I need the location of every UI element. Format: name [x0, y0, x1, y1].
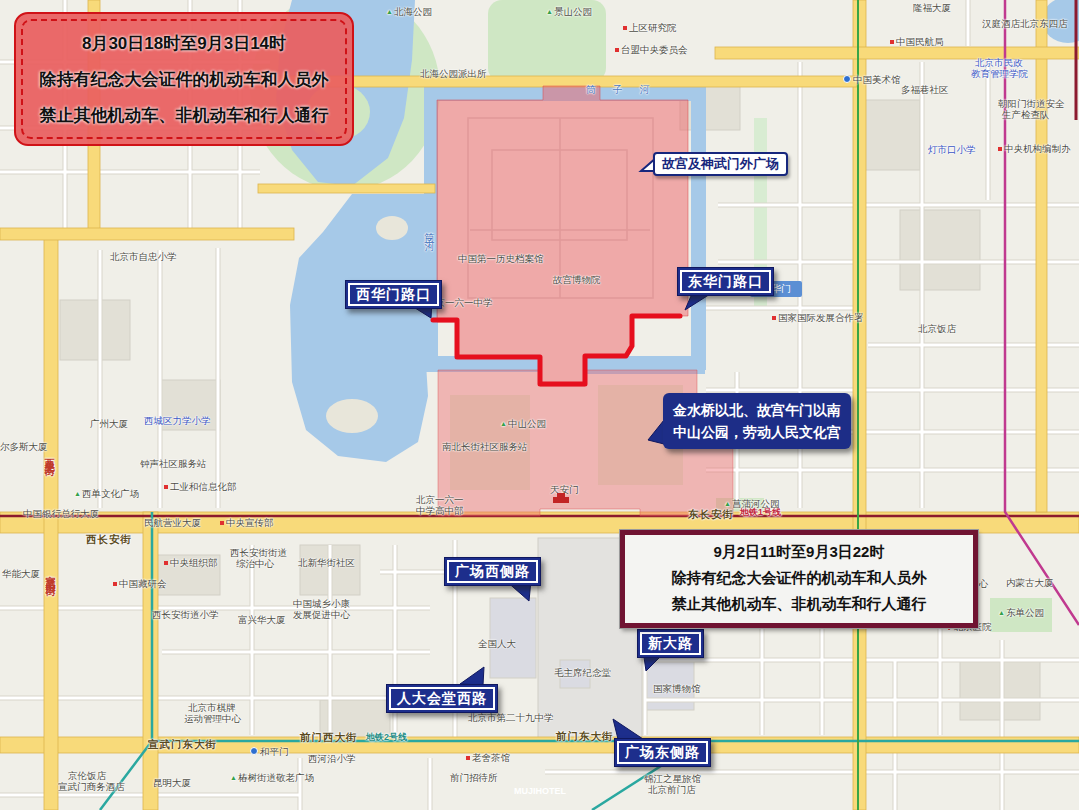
map-label: 前门招待所: [450, 772, 498, 783]
map-label: 中国美术馆: [843, 74, 901, 85]
map-label: 中国城乡小康: [293, 598, 350, 609]
map-label: 西单文化广场: [74, 488, 139, 499]
map-label: 多福巷社区: [901, 84, 949, 95]
road-callout: 新大路: [637, 629, 704, 658]
map-label: 昆明大厦: [153, 777, 191, 788]
road-callout-label: 新大路: [640, 632, 701, 655]
map-label: 上区研究院: [623, 22, 677, 33]
beijing-traffic-restriction-map[interactable]: 北海公园景山公园上区研究院台盟中央委员会北海公园派出所筒 子 河隆福大厦汉庭酒店…: [0, 0, 1079, 810]
map-label: 内蒙古大厦: [1006, 577, 1054, 588]
road-callout-label: 西华门路口: [348, 283, 439, 306]
map-label: 筒 子 河: [586, 84, 657, 95]
banner-line: 禁止其他机动车、非机动车和行人通行: [625, 591, 973, 617]
map-label: 京伦饭店: [68, 770, 106, 781]
map-label: 尔多斯大厦: [0, 441, 48, 452]
map-label: 西长安街街道: [230, 547, 287, 558]
map-label: 台盟中央委员会: [615, 44, 688, 55]
restriction-banner-sep2: 9月2日11时至9月3日22时 除持有纪念大会证件的机动车和人员外 禁止其他机动…: [620, 530, 978, 628]
map-label: 中山公园: [500, 418, 546, 429]
map-label: 富兴华大厦: [238, 614, 286, 625]
map-label: 西长安街道小学: [152, 609, 219, 620]
road-callout-label: 广场东侧路: [617, 741, 708, 764]
map-label: 东单公园: [998, 607, 1044, 618]
map-label: 国家国际发展合作署: [772, 312, 864, 323]
map-label: 北海公园派出所: [420, 68, 487, 79]
callout-palace-square: 故宫及神武门外广场: [653, 152, 788, 176]
map-label: 运动管理中心: [184, 713, 241, 724]
banner-line: 除持有纪念大会证件的机动车和人员外: [16, 62, 352, 98]
map-label: 北京饭店: [918, 323, 956, 334]
map-label: 北京前门店: [648, 784, 696, 795]
map-label: 前门西大街: [300, 732, 358, 743]
map-label: 北京一六一: [416, 494, 464, 505]
map-label: 西单北大街: [44, 450, 55, 460]
map-label: 中国藏研会: [113, 578, 167, 589]
map-label: 中国民航局: [890, 36, 944, 47]
road-callout: 广场西侧路: [444, 557, 541, 586]
map-label: MUJIHOTEL: [514, 786, 566, 797]
callout-south-line1: 金水桥以北、故宫午门以南: [673, 399, 841, 421]
road-callout-label: 人大会堂西路: [389, 687, 495, 710]
map-label: 北京市第二十九中学: [468, 712, 554, 723]
road-callout: 西华门路口: [345, 280, 442, 309]
map-label: 钟声社区服务站: [140, 458, 207, 469]
map-label: 和平门: [250, 746, 289, 757]
map-label: 发展促进中心: [293, 609, 350, 620]
map-label: 宣武门内大街: [45, 568, 56, 580]
road-callout-label: 广场西侧路: [447, 560, 538, 583]
banner-line: 8月30日18时至9月3日14时: [16, 26, 352, 62]
map-label: 北京市棋牌: [188, 702, 236, 713]
banner-line: 除持有纪念大会证件的机动车和人员外: [625, 565, 973, 591]
map-label: 老舍茶馆: [466, 752, 510, 763]
map-label: 灯市口小学: [928, 144, 976, 155]
map-label: 广州大厦: [90, 418, 128, 429]
map-label: 景山公园: [546, 6, 592, 17]
map-label: 生产检查队: [1002, 109, 1050, 120]
map-label: 东长安街: [688, 509, 734, 520]
map-label: 中学高中部: [416, 505, 464, 516]
map-label: 北京市自忠小学: [110, 251, 177, 262]
map-label: 故宫博物院: [553, 274, 601, 285]
map-label: 筒子河: [424, 225, 435, 237]
map-label: 西河沿小学: [308, 753, 356, 764]
road-callout: 人大会堂西路: [386, 684, 498, 713]
banner-line: 禁止其他机动车、非机动车和行人通行: [16, 98, 352, 134]
map-label: 锦江之星旅馆: [644, 773, 701, 784]
tiananmen-gate-icon: [553, 497, 569, 503]
map-label: 全国人大: [478, 638, 516, 649]
map-label: 中央宣传部: [220, 517, 274, 528]
map-label: 朝阳门街道安全: [998, 98, 1065, 109]
map-label: 中央组织部: [164, 557, 218, 568]
road-callout: 东华门路口: [677, 267, 774, 296]
map-label: 北海公园: [386, 6, 432, 17]
map-label: 中国银行总行大厦: [23, 508, 99, 519]
map-label: 前门东大街: [556, 731, 614, 742]
map-label: 中国第一历史档案馆: [458, 253, 544, 264]
map-label: 毛主席纪念堂: [554, 667, 611, 678]
map-label: 椿树街道敬老广场: [230, 772, 314, 783]
map-label: 综治中心: [236, 558, 274, 569]
map-label: 南北长街社区服务站: [442, 441, 528, 452]
map-label: 北新华街社区: [298, 557, 355, 568]
callout-south-line2: 中山公园，劳动人民文化宫: [673, 421, 841, 443]
map-label: 隆福大厦: [913, 2, 951, 13]
map-label: 北京市民政: [975, 57, 1023, 68]
map-label: 中央机构编制办: [998, 143, 1071, 154]
road-callout-label: 东华门路口: [680, 270, 771, 293]
map-label: 工业和信息化部: [164, 481, 237, 492]
map-label: 菖蒲河公园: [724, 498, 779, 509]
map-label: 宣武门东大街: [148, 739, 217, 750]
map-label: 地铁2号线: [366, 732, 407, 743]
restriction-banner-aug30: 8月30日18时至9月3日14时 除持有纪念大会证件的机动车和人员外 禁止其他机…: [14, 12, 354, 146]
road-callout: 广场东侧路: [614, 738, 711, 767]
map-label: 汉庭酒店北京东四店: [982, 18, 1068, 29]
map-label: 国家博物馆: [653, 683, 701, 694]
map-label: 华能大厦: [2, 568, 40, 579]
map-label: 宣武门商务酒店: [58, 781, 125, 792]
banner-line: 9月2日11时至9月3日22时: [625, 539, 973, 565]
map-label: 教育管理学院: [971, 68, 1028, 79]
callout-south-zone: 金水桥以北、故宫午门以南 中山公园，劳动人民文化宫: [663, 393, 851, 449]
map-label: 西长安街: [86, 534, 132, 545]
map-label: 民航营业大厦: [144, 517, 201, 528]
map-label: 西城区力学小学: [144, 415, 211, 426]
